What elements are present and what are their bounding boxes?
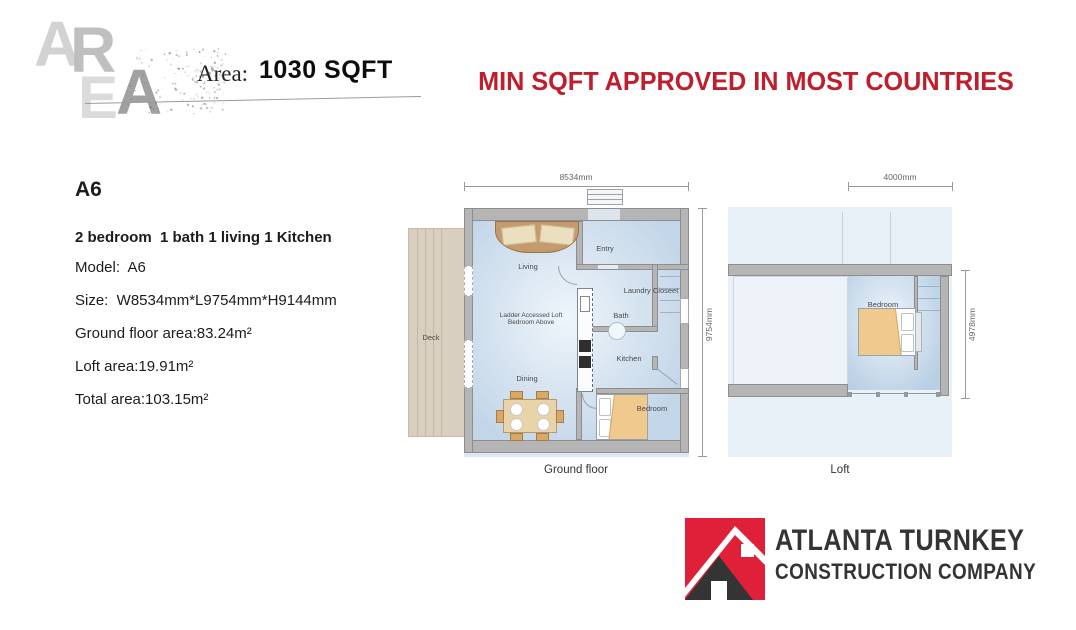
loft-width-dimension: 4000mm	[848, 172, 952, 182]
chair	[496, 410, 504, 423]
gf-height-dimension: 9754mm	[704, 308, 714, 341]
spec-ground-area: Ground floor area:83.24m²	[75, 325, 252, 342]
loft-note-line1: Ladder Accessed Loft	[492, 312, 570, 319]
dim-tick	[698, 208, 707, 209]
loft-roof-line	[890, 212, 891, 264]
ladder-rung	[918, 298, 940, 299]
model-code: A6	[75, 178, 102, 202]
dim-tick	[688, 182, 689, 191]
ladder-rung	[918, 286, 940, 287]
spec-size: Size: W8534mm*L9754mm*H9144mm	[75, 292, 337, 309]
kitchen-sink	[580, 296, 590, 312]
loft-wall-top	[728, 264, 952, 276]
dining-table	[503, 399, 557, 433]
loft-roof-line	[842, 212, 843, 264]
room-label-kitchen: Kitchen	[599, 354, 659, 363]
gf-wall-entry-laundry	[576, 264, 689, 270]
stove-burner	[579, 356, 591, 368]
loft-headboard	[915, 312, 922, 352]
stove-burner	[579, 340, 591, 352]
bath-fixture	[608, 322, 626, 340]
gf-window-left-1	[464, 266, 473, 296]
room-label-living: Living	[498, 262, 558, 271]
gf-wall-right	[680, 208, 689, 453]
svg-text:E: E	[78, 64, 118, 124]
chair	[536, 391, 549, 399]
company-logo-house-icon	[685, 518, 765, 600]
room-label-loft-bedroom: Bedroom	[848, 300, 918, 309]
dim-tick	[961, 398, 970, 399]
spec-model: Model: A6	[75, 259, 146, 276]
rooms-summary: 2 bedroom 1 bath 1 living 1 Kitchen	[75, 229, 332, 246]
loft-railing	[848, 393, 942, 394]
dim-tick	[848, 182, 849, 191]
spec-total-area: Total area:103.15m²	[75, 391, 208, 408]
loft-wall-bottom	[728, 384, 848, 397]
loft-width-dimension-line	[848, 186, 952, 187]
loft-open-area	[733, 276, 848, 386]
gf-wall-bath-right	[652, 264, 658, 330]
gf-bed	[596, 394, 648, 440]
gf-wall-left	[464, 208, 473, 453]
svg-text:A: A	[116, 56, 162, 124]
gf-width-dimension-line	[464, 186, 688, 187]
room-label-bath: Bath	[601, 311, 641, 320]
gf-height-dimension-line	[702, 208, 703, 456]
gf-caption: Ground floor	[464, 464, 688, 476]
company-name: ATLANTA TURNKEY	[775, 524, 1024, 558]
brochure-page: A R E A Area: 1030 SQFT MIN SQFT APPROVE…	[0, 0, 1076, 630]
stair-line	[660, 312, 680, 313]
room-label-entry: Entry	[585, 244, 625, 253]
chair	[510, 433, 523, 441]
entry-door-opening	[588, 209, 620, 220]
rail-post	[876, 392, 880, 397]
loft-note-line2: Bedroom Above	[492, 319, 570, 326]
gf-wall-bottom	[464, 440, 689, 453]
chair	[536, 433, 549, 441]
laundry-door-opening	[598, 265, 618, 269]
gf-wall-top	[464, 208, 689, 221]
gf-width-dimension: 8534mm	[464, 172, 688, 182]
stair-line	[660, 276, 680, 277]
dim-tick	[698, 456, 707, 457]
area-label: Area:	[197, 61, 248, 87]
stair-line	[660, 300, 680, 301]
entry-steps	[587, 189, 623, 209]
company-subtitle: CONSTRUCTION COMPANY	[775, 559, 1036, 585]
loft-wall-right	[940, 276, 949, 396]
room-label-dining: Dining	[497, 374, 557, 383]
chair	[556, 410, 564, 423]
room-label-gf-bedroom: Bedroom	[617, 404, 687, 413]
chair	[510, 391, 523, 399]
gf-deck-door	[464, 340, 473, 388]
area-value: 1030 SQFT	[259, 56, 393, 85]
loft-caption: Loft	[728, 464, 952, 476]
loft-height-dimension: 4978mm	[967, 308, 977, 341]
rail-post	[936, 392, 940, 397]
rail-post	[848, 392, 852, 397]
rail-post	[904, 392, 908, 397]
dim-tick	[952, 182, 953, 191]
dim-tick	[464, 182, 465, 191]
gf-window-right-1	[680, 298, 689, 324]
gf-wall-bedroom-left	[576, 388, 582, 440]
room-label-deck: Deck	[406, 333, 456, 342]
loft-height-dimension-line	[965, 270, 966, 398]
loft-bed	[858, 308, 916, 356]
ladder-rung	[918, 310, 940, 311]
headline: MIN SQFT APPROVED IN MOST COUNTRIES	[474, 66, 1017, 97]
dim-tick	[961, 270, 970, 271]
room-label-laundry: Laundry Closeet	[611, 286, 691, 295]
spec-loft-area: Loft area:19.91m²	[75, 358, 193, 375]
